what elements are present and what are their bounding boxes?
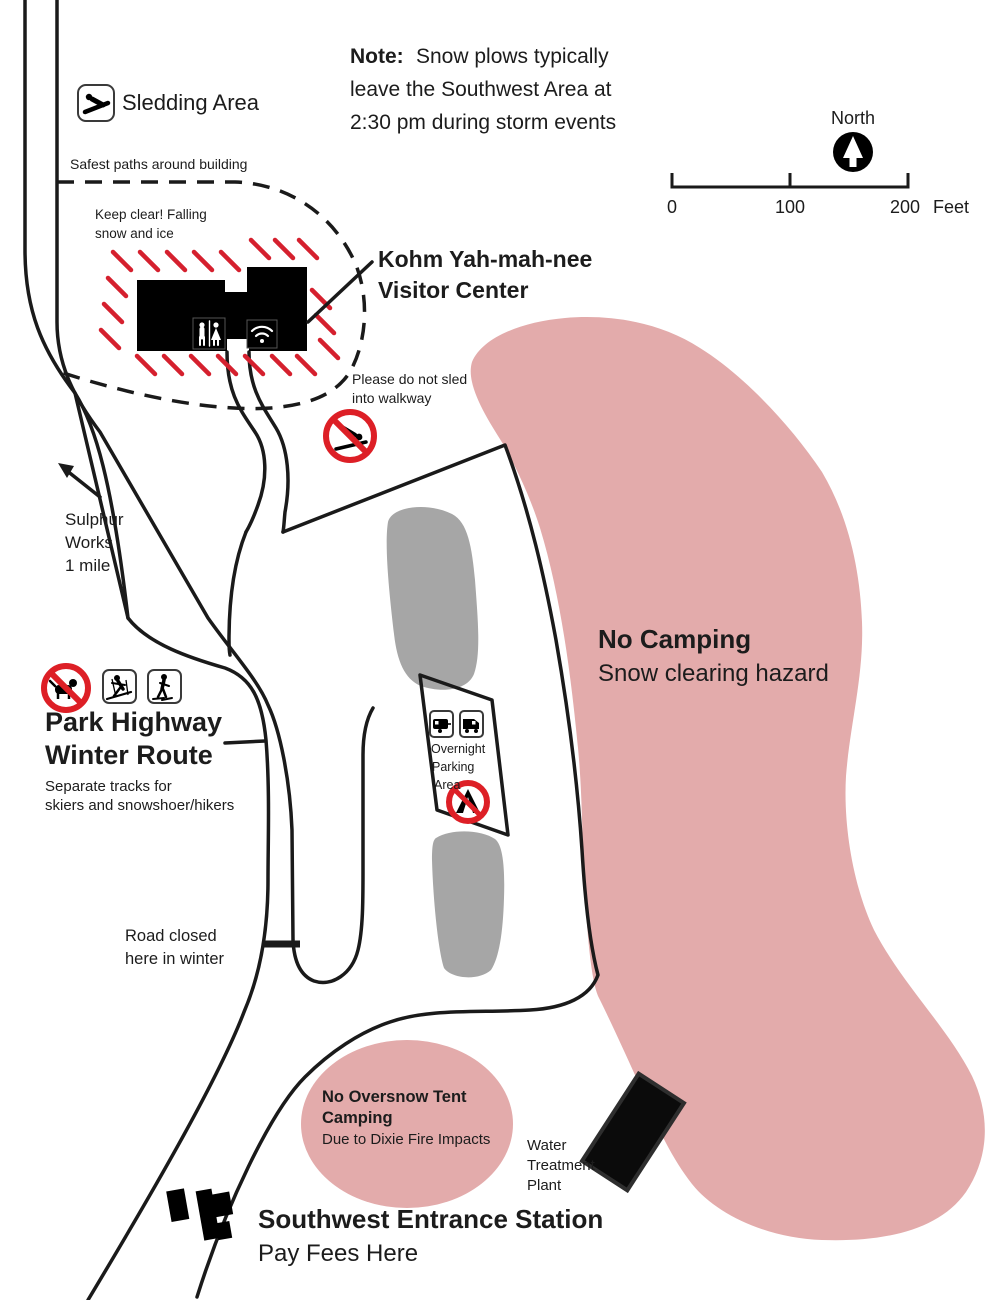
- scale-bar: [672, 173, 908, 187]
- no-dogs-icon: [44, 666, 88, 710]
- sulphur-works-line1: Sulphur: [65, 510, 124, 529]
- entrance-station-line1: Southwest Entrance Station: [258, 1204, 603, 1234]
- sulphur-works-line3: 1 mile: [65, 556, 110, 575]
- overnight-parking-line1: Overnight: [431, 742, 486, 756]
- winter-route-sub1: Separate tracks for: [45, 778, 172, 795]
- winter-route-leader-line: [225, 741, 265, 743]
- water-plant-line1: Water: [527, 1137, 566, 1154]
- no-camping-line2: Snow clearing hazard: [598, 660, 829, 687]
- visitor-center-label-line1: Kohm Yah-mah-nee: [378, 246, 592, 272]
- scale-tick-0: 0: [667, 197, 677, 217]
- visitor-center-leader-line: [308, 262, 372, 322]
- restroom-icon: [193, 318, 225, 349]
- snow-pile-upper: [387, 507, 479, 690]
- winter-route-line1: Park Highway: [45, 707, 222, 737]
- sulphur-works-line2: Works: [65, 533, 113, 552]
- entrance-station-line2: Pay Fees Here: [258, 1240, 418, 1267]
- road-closed-line1: Road closed: [125, 927, 217, 945]
- scale-tick-200: 200: [890, 197, 920, 217]
- camper-van-icon: [460, 711, 483, 737]
- north-arrow-icon: [833, 132, 873, 172]
- winter-area-map: Note: Snow plows typically leave the Sou…: [0, 0, 1002, 1300]
- snowshoer-icon: [148, 670, 181, 703]
- water-plant-line2: Treatment: [527, 1157, 596, 1174]
- walkway-left-edge: [227, 352, 265, 532]
- park-highway-right-edge: [57, 0, 373, 982]
- overnight-parking-line3: Area: [434, 778, 460, 792]
- north-label: North: [831, 108, 875, 128]
- water-plant-line3: Plant: [527, 1177, 562, 1194]
- trailer-icon: [430, 711, 453, 737]
- no-camping-hazard-area: [471, 317, 985, 1240]
- no-sled-label-line2: into walkway: [352, 390, 431, 406]
- skier-icon: [103, 670, 136, 703]
- note-line1: Snow plows typically: [416, 45, 609, 68]
- parking-entry-edge: [229, 532, 246, 655]
- scale-unit: Feet: [933, 197, 969, 217]
- sledding-area-label: Sledding Area: [122, 90, 260, 115]
- visitor-center-label-line2: Visitor Center: [378, 277, 528, 303]
- keep-clear-line2: snow and ice: [95, 226, 174, 241]
- sledding-area-icon: [78, 85, 114, 121]
- tent-camping-line1: No Oversnow Tent: [322, 1088, 467, 1106]
- note-line3: 2:30 pm during storm events: [350, 111, 616, 134]
- walkway-right-edge: [249, 352, 288, 532]
- wifi-icon: [247, 320, 277, 348]
- note-line2: leave the Southwest Area at: [350, 78, 612, 101]
- no-camping-line1: No Camping: [598, 624, 751, 654]
- road-closed-line2: here in winter: [125, 950, 225, 968]
- tent-camping-line3: Due to Dixie Fire Impacts: [322, 1131, 490, 1148]
- no-sledding-icon: [326, 412, 374, 460]
- winter-route-sub2: skiers and snowshoer/hikers: [45, 797, 234, 814]
- scale-tick-100: 100: [775, 197, 805, 217]
- note-prefix: Note:: [350, 45, 404, 68]
- keep-clear-line1: Keep clear! Falling: [95, 207, 207, 222]
- map-canvas: Note: Snow plows typically leave the Sou…: [0, 0, 1002, 1300]
- entrance-station-buildings: [166, 1181, 237, 1248]
- safest-paths-label: Safest paths around building: [70, 156, 247, 172]
- snow-pile-lower: [432, 831, 504, 977]
- overnight-parking-line2: Parking: [432, 760, 474, 774]
- winter-route-line2: Winter Route: [45, 740, 213, 770]
- no-sled-label-line1: Please do not sled: [352, 371, 467, 387]
- tent-camping-line2: Camping: [322, 1109, 393, 1127]
